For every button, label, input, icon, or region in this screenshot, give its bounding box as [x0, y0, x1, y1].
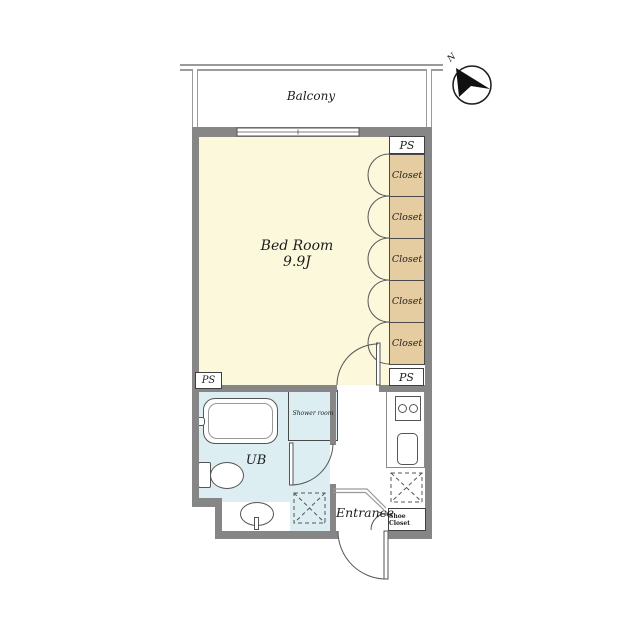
bedroom-label: Bed Room 9.9J	[247, 238, 347, 270]
shower-room-label: Shower room	[288, 410, 338, 417]
closet-door-arcs	[368, 154, 389, 364]
entrance-door	[338, 531, 388, 579]
compass	[453, 66, 491, 104]
bedroom-size: 9.9J	[247, 254, 347, 270]
washer-space	[294, 493, 325, 523]
entrance-label: Entrance	[336, 505, 386, 520]
ub-door	[290, 443, 334, 485]
balcony-label: Balcony	[261, 89, 361, 103]
floorplan: Closet Closet Closet Closet Closet PS PS…	[0, 0, 640, 640]
bedroom-name: Bed Room	[247, 238, 347, 254]
bedroom-door	[337, 343, 380, 385]
window	[237, 128, 359, 136]
ub-label: UB	[236, 453, 276, 468]
fridge-space	[391, 473, 422, 502]
